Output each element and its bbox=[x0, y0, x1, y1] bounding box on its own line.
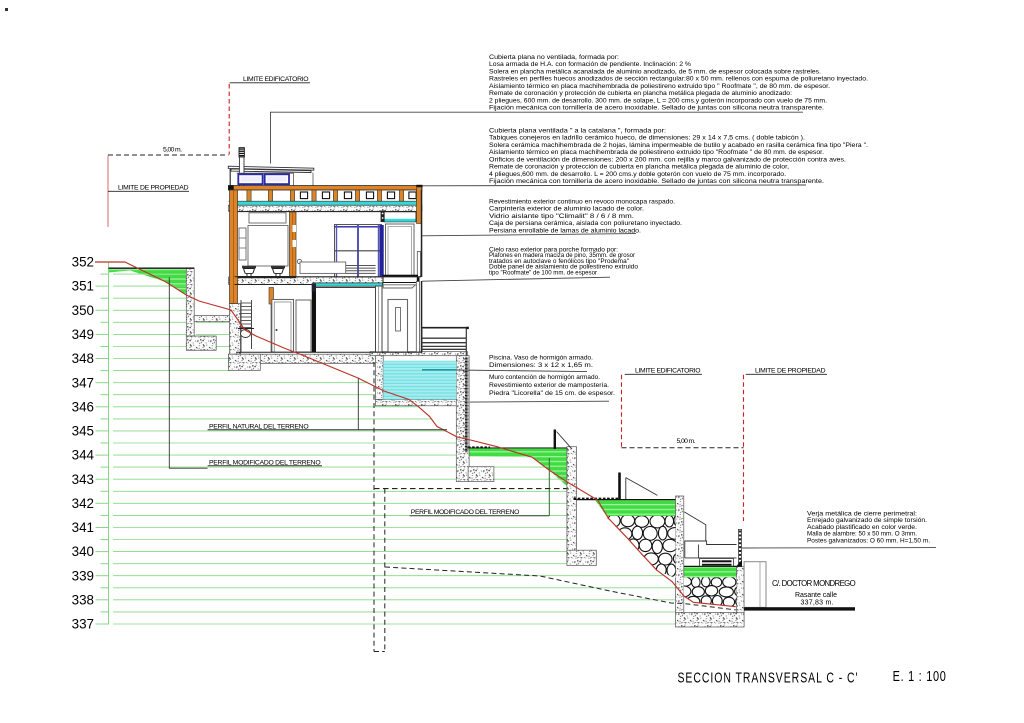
svg-text:344: 344 bbox=[72, 448, 95, 463]
svg-text:4 pliegues,600 mm. de desarrol: 4 pliegues,600 mm. de desarrollo. L = 20… bbox=[489, 171, 786, 178]
svg-text:348: 348 bbox=[72, 351, 94, 366]
svg-text:Losa armada de H.A. con formac: Losa armada de H.A. con formación de pen… bbox=[489, 61, 691, 68]
svg-text:Remate de coronación y protecc: Remate de coronación y protección de cub… bbox=[489, 90, 792, 97]
svg-text:Fijación mecánica con tornille: Fijación mecánica con tornillería de ace… bbox=[489, 105, 824, 112]
svg-text:Aislamiento térmico en placa m: Aislamiento térmico en placa machihembra… bbox=[489, 149, 824, 156]
svg-text:342: 342 bbox=[72, 496, 94, 511]
svg-text:SECCION TRANSVERSAL C - C': SECCION TRANSVERSAL C - C' bbox=[678, 670, 859, 687]
svg-text:Tabiques conejeros en ladrillo: Tabiques conejeros en ladrillo cerámico … bbox=[489, 135, 805, 142]
svg-text:Solera en plancha metálica aca: Solera en plancha metálica acanalada de … bbox=[489, 69, 821, 76]
svg-text:338: 338 bbox=[72, 592, 94, 607]
svg-text:Remate de coronación y protecc: Remate de coronación y protección de cub… bbox=[489, 164, 789, 171]
svg-text:349: 349 bbox=[72, 327, 94, 342]
svg-text:Revestimiento exterior de mamp: Revestimiento exterior de mampostería. bbox=[489, 382, 609, 389]
svg-text:Revestimiento exterior continu: Revestimiento exterior continuo en revoc… bbox=[489, 199, 675, 206]
svg-text:345: 345 bbox=[72, 424, 94, 439]
svg-text:LIMITE EDIFICATORIO: LIMITE EDIFICATORIO bbox=[635, 368, 701, 375]
svg-text:Caja de persiana cerámica, ais: Caja de persiana cerámica, aislada con p… bbox=[489, 220, 682, 227]
svg-text:340: 340 bbox=[72, 544, 94, 559]
svg-text:PERFIL MODIFICADO DEL TERRE: PERFIL MODIFICADO DEL TERRENO bbox=[209, 460, 321, 467]
svg-text:Solera cerámica machihembrada: Solera cerámica machihembrada de 2 hojas… bbox=[489, 142, 868, 149]
svg-text:Piscina. Vaso de hormigón arma: Piscina. Vaso de hormigón armado. bbox=[489, 355, 593, 362]
svg-text:347: 347 bbox=[72, 375, 94, 390]
svg-text:351: 351 bbox=[72, 279, 94, 294]
svg-text:Cubierta plana no ventilada, f: Cubierta plana no ventilada, formada por… bbox=[489, 54, 619, 61]
svg-text:Aislamiento térmico en placa m: Aislamiento térmico en placa machihembra… bbox=[489, 83, 830, 90]
svg-text:352: 352 bbox=[72, 255, 94, 270]
svg-text:5,00 m.: 5,00 m. bbox=[163, 147, 182, 154]
svg-text:Carpintería exterior de alumin: Carpintería exterior de aluminio lacado … bbox=[489, 206, 644, 213]
svg-text:LIMITE DE PROPIEDAD: LIMITE DE PROPIEDAD bbox=[755, 368, 826, 375]
svg-text:PERFIL NATURAL DEL TERRENO: PERFIL NATURAL DEL TERRENO bbox=[209, 424, 309, 431]
svg-text:C/. DOCTOR MONDREGO: C/. DOCTOR MONDREGO bbox=[772, 579, 856, 588]
svg-text:343: 343 bbox=[72, 472, 94, 487]
svg-text:337,83 m.: 337,83 m. bbox=[801, 600, 834, 607]
svg-text:Dimensiones: 3 x 12 x 1,65: Dimensiones: 3 x 12 x 1,65 m. bbox=[489, 362, 593, 369]
svg-text:Persiana enrollable de lamas d: Persiana enrollable de lamas de aluminio… bbox=[489, 227, 641, 234]
svg-text:Fijación mecánica con tornille: Fijación mecánica con tornillería de ace… bbox=[489, 178, 824, 185]
svg-text:Vidrio aislante tipo "Climalit: Vidrio aislante tipo "Climalit" 8 / 6 / … bbox=[489, 213, 634, 220]
svg-text:346: 346 bbox=[72, 399, 94, 414]
svg-text:LIMITE DE PROPIEDAD: LIMITE DE PROPIEDAD bbox=[118, 185, 189, 192]
svg-text:Rastreles en perfiles huecos a: Rastreles en perfiles huecos anodizados … bbox=[489, 76, 868, 83]
svg-text:tipo "Roofmate" de 100 mm. de: tipo "Roofmate" de 100 mm. de espesor bbox=[489, 270, 597, 277]
svg-text:Cubierta plana ventilada " a l: Cubierta plana ventilada " a la catalana… bbox=[489, 128, 666, 135]
svg-text:339: 339 bbox=[72, 568, 94, 583]
svg-text:337: 337 bbox=[72, 617, 94, 632]
svg-text:2 pliegues, 600 mm. de desarro: 2 pliegues, 600 mm. de desarrollo. 300 m… bbox=[489, 97, 827, 104]
svg-text:LIMITE EDIFICATORIO: LIMITE EDIFICATORIO bbox=[243, 76, 309, 83]
svg-text:E. 1 : 100: E. 1 : 100 bbox=[893, 668, 947, 685]
svg-text:341: 341 bbox=[72, 520, 94, 535]
svg-text:350: 350 bbox=[72, 303, 94, 318]
svg-text:PERFIL MODIFICADO DEL TERRE: PERFIL MODIFICADO DEL TERRENO bbox=[411, 509, 520, 516]
svg-text:Rasante calle: Rasante calle bbox=[795, 592, 837, 599]
svg-text:Orificios de ventilación de di: Orificios de ventilación de dimensiones:… bbox=[489, 156, 846, 163]
svg-text:Muro contención de hormigón ar: Muro contención de hormigón armado. bbox=[489, 374, 600, 381]
svg-text:Postes galvanizados: O 60 mm.: Postes galvanizados: O 60 mm. H=1,50 m. bbox=[807, 537, 930, 544]
svg-text:Piedra "Licorella" de 15 cm. d: Piedra "Licorella" de 15 cm. de espesor. bbox=[489, 390, 615, 397]
svg-text:5,00 m.: 5,00 m. bbox=[677, 438, 696, 445]
